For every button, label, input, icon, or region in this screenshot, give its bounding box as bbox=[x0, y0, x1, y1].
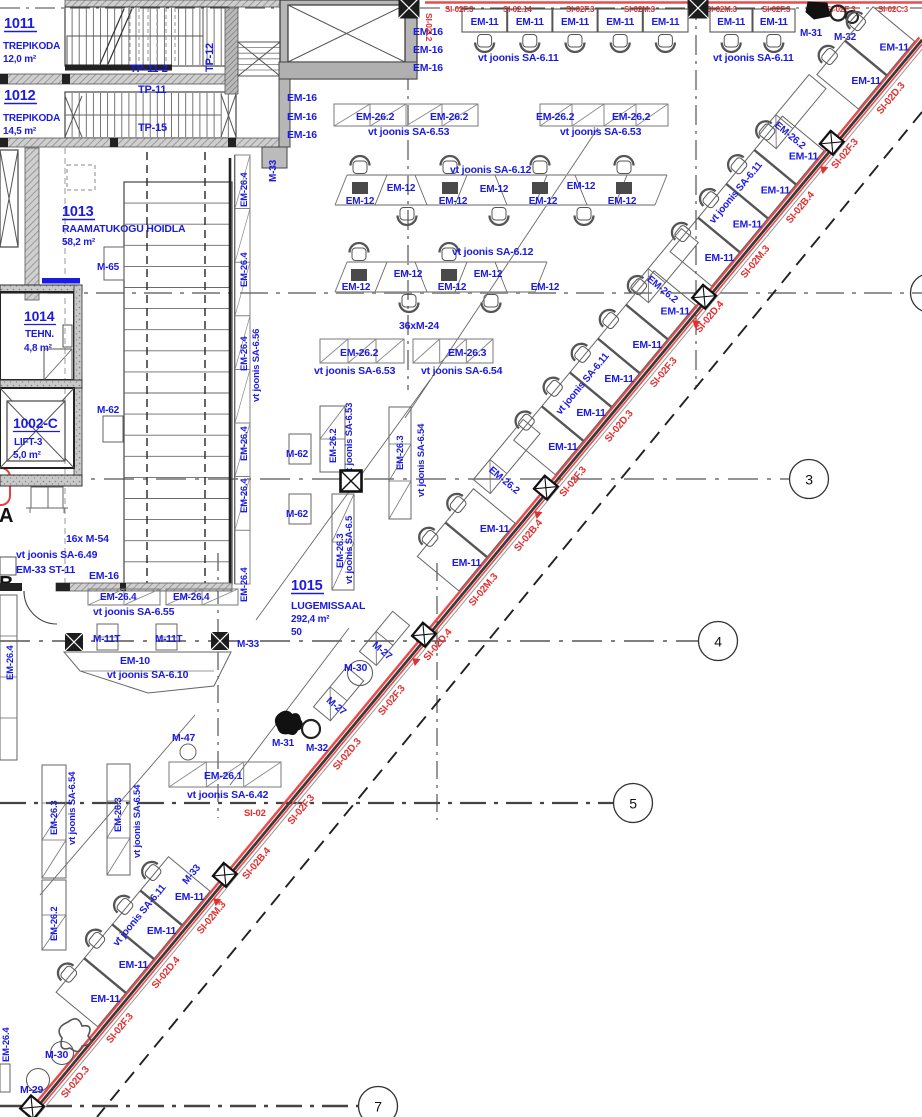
svg-text:EM-12: EM-12 bbox=[474, 269, 503, 280]
svg-text:EM-26.4: EM-26.4 bbox=[239, 172, 250, 207]
svg-text:1015: 1015 bbox=[291, 578, 323, 594]
svg-text:7: 7 bbox=[374, 1099, 382, 1115]
svg-text:M-32: M-32 bbox=[306, 743, 329, 754]
svg-text:vt joonis SA-6.54: vt joonis SA-6.54 bbox=[132, 784, 143, 858]
svg-text:TP-12: TP-12 bbox=[204, 43, 216, 72]
svg-text:EM-16: EM-16 bbox=[413, 44, 443, 56]
svg-text:vt joonis SA-6.55: vt joonis SA-6.55 bbox=[93, 606, 175, 618]
svg-text:vt joonis SA-6.53: vt joonis SA-6.53 bbox=[314, 365, 396, 377]
svg-text:EM-11: EM-11 bbox=[604, 373, 634, 385]
svg-text:vt joonis SA-6.54: vt joonis SA-6.54 bbox=[421, 365, 503, 377]
svg-text:EM-11: EM-11 bbox=[452, 557, 482, 569]
svg-text:EM-26.4: EM-26.4 bbox=[239, 252, 250, 287]
svg-text:vt joonis SA-6.5: vt joonis SA-6.5 bbox=[344, 515, 355, 584]
svg-text:vt joonis SA-6.54: vt joonis SA-6.54 bbox=[67, 771, 78, 845]
svg-text:vt joonis SA-6.10: vt joonis SA-6.10 bbox=[107, 669, 189, 681]
svg-text:EM-11: EM-11 bbox=[516, 17, 545, 28]
svg-text:1012: 1012 bbox=[4, 88, 36, 104]
svg-text:1011: 1011 bbox=[4, 16, 35, 32]
svg-text:EM-16: EM-16 bbox=[287, 111, 317, 123]
svg-text:1002-C: 1002-C bbox=[13, 415, 58, 431]
svg-text:EM-16: EM-16 bbox=[89, 570, 119, 582]
svg-text:EM-11: EM-11 bbox=[561, 17, 590, 28]
svg-text:M-47: M-47 bbox=[172, 732, 195, 744]
svg-text:M-33: M-33 bbox=[237, 639, 260, 650]
svg-text:vt joonis SA-6.12: vt joonis SA-6.12 bbox=[450, 164, 532, 176]
svg-text:SI-02I.2: SI-02I.2 bbox=[424, 13, 434, 42]
svg-text:vt joonis SA-6.12: vt joonis SA-6.12 bbox=[452, 246, 534, 258]
svg-text:vt joonis SA-6.53: vt joonis SA-6.53 bbox=[560, 126, 642, 138]
svg-text:5: 5 bbox=[629, 796, 637, 812]
svg-text:SI-02: SI-02 bbox=[244, 808, 266, 819]
svg-text:EM-11: EM-11 bbox=[480, 523, 510, 535]
svg-text:M-62: M-62 bbox=[286, 449, 309, 460]
svg-text:292,4 m²: 292,4 m² bbox=[291, 614, 330, 625]
svg-text:3: 3 bbox=[805, 472, 813, 488]
svg-text:EM-26.2: EM-26.2 bbox=[356, 111, 395, 123]
svg-text:EM-26.4: EM-26.4 bbox=[239, 478, 250, 513]
svg-text:36xM-24: 36xM-24 bbox=[399, 320, 439, 332]
svg-text:EM-12: EM-12 bbox=[608, 196, 637, 207]
svg-text:M-62: M-62 bbox=[97, 405, 120, 416]
svg-text:1013: 1013 bbox=[62, 204, 94, 220]
svg-text:EM-26.4: EM-26.4 bbox=[239, 426, 250, 461]
svg-text:EM-11: EM-11 bbox=[175, 891, 205, 903]
svg-text:EM-11: EM-11 bbox=[761, 185, 791, 197]
svg-text:EM-11: EM-11 bbox=[633, 339, 663, 351]
svg-text:M-29: M-29 bbox=[20, 1084, 43, 1096]
svg-text:50: 50 bbox=[291, 627, 302, 638]
svg-text:LIFT-3: LIFT-3 bbox=[14, 437, 43, 448]
svg-text:vt joonis SA-6.53: vt joonis SA-6.53 bbox=[368, 126, 450, 138]
svg-text:EM-12: EM-12 bbox=[567, 181, 596, 192]
svg-text:EM-11: EM-11 bbox=[880, 41, 910, 53]
svg-text:EM-12: EM-12 bbox=[439, 196, 468, 207]
svg-text:vt joonis SA-6.49: vt joonis SA-6.49 bbox=[16, 549, 98, 561]
svg-text:EM-26.2: EM-26.2 bbox=[536, 111, 575, 123]
svg-text:TREPIKODA: TREPIKODA bbox=[3, 41, 60, 52]
svg-text:EM-26.4: EM-26.4 bbox=[173, 592, 210, 603]
svg-text:5,0 m²: 5,0 m² bbox=[13, 450, 42, 461]
svg-text:EM-26.3: EM-26.3 bbox=[395, 435, 406, 470]
svg-text:EM-11: EM-11 bbox=[705, 252, 735, 264]
svg-text:EM-11: EM-11 bbox=[606, 17, 635, 28]
svg-text:EM-11: EM-11 bbox=[548, 441, 578, 453]
svg-text:M-30: M-30 bbox=[344, 662, 367, 674]
svg-text:TP-15: TP-15 bbox=[138, 122, 167, 134]
svg-text:LUGEMISSAAL: LUGEMISSAAL bbox=[291, 600, 366, 612]
svg-text:EM-26.2: EM-26.2 bbox=[328, 428, 339, 463]
svg-text:M-65: M-65 bbox=[97, 262, 120, 273]
svg-text:EM-26.2: EM-26.2 bbox=[430, 111, 469, 123]
svg-text:EM-11: EM-11 bbox=[576, 407, 606, 419]
svg-text:EM-12: EM-12 bbox=[394, 269, 423, 280]
svg-text:EM-11: EM-11 bbox=[789, 151, 819, 163]
svg-text:vt joonis SA-6.42: vt joonis SA-6.42 bbox=[187, 789, 269, 801]
svg-text:EM-11: EM-11 bbox=[147, 925, 177, 937]
svg-text:EM-12: EM-12 bbox=[387, 183, 416, 194]
svg-text:EM-11: EM-11 bbox=[661, 305, 691, 317]
svg-text:EM-16: EM-16 bbox=[413, 62, 443, 74]
svg-text:M-11T: M-11T bbox=[155, 634, 182, 645]
svg-text:EM-11: EM-11 bbox=[471, 17, 500, 28]
svg-text:14,5 m²: 14,5 m² bbox=[3, 126, 37, 137]
svg-text:EM-11: EM-11 bbox=[651, 17, 680, 28]
svg-text:M-33: M-33 bbox=[268, 159, 279, 182]
svg-text:1014: 1014 bbox=[24, 308, 55, 324]
svg-text:EM-12: EM-12 bbox=[438, 282, 467, 293]
svg-text:EM-12: EM-12 bbox=[531, 282, 560, 293]
svg-text:vt joonis SA-6.56: vt joonis SA-6.56 bbox=[251, 329, 262, 402]
svg-text:EM-26.3: EM-26.3 bbox=[113, 797, 124, 832]
svg-text:A: A bbox=[0, 505, 13, 527]
svg-text:EM-11: EM-11 bbox=[119, 959, 149, 971]
svg-text:EM-26.2: EM-26.2 bbox=[49, 906, 60, 941]
svg-text:EM-11: EM-11 bbox=[91, 993, 121, 1005]
svg-text:vt joonis SA-6.54: vt joonis SA-6.54 bbox=[416, 423, 427, 497]
svg-text:EM-26.2: EM-26.2 bbox=[612, 111, 651, 123]
svg-text:TP-11-2: TP-11-2 bbox=[130, 63, 168, 75]
svg-text:EM-26.4: EM-26.4 bbox=[5, 645, 16, 680]
svg-text:vt joonis SA-6.11: vt joonis SA-6.11 bbox=[478, 52, 559, 64]
svg-text:EM-16: EM-16 bbox=[287, 129, 317, 141]
svg-text:58,2 m²: 58,2 m² bbox=[62, 237, 96, 248]
svg-text:M-62: M-62 bbox=[286, 509, 309, 520]
svg-text:EM-12: EM-12 bbox=[342, 282, 371, 293]
svg-text:EM-26.3: EM-26.3 bbox=[49, 800, 60, 835]
svg-text:12,0 m²: 12,0 m² bbox=[3, 54, 37, 65]
svg-text:EM-33 ST-11: EM-33 ST-11 bbox=[16, 564, 75, 576]
svg-text:EM-12: EM-12 bbox=[529, 196, 558, 207]
svg-text:EM-26.4: EM-26.4 bbox=[239, 336, 250, 371]
svg-text:TREPIKODA: TREPIKODA bbox=[3, 113, 60, 124]
svg-text:M-11T: M-11T bbox=[93, 634, 120, 645]
svg-text:EM-16: EM-16 bbox=[287, 92, 317, 104]
svg-text:EM-11: EM-11 bbox=[760, 17, 789, 28]
svg-text:4: 4 bbox=[714, 634, 722, 650]
svg-text:EM-26.4: EM-26.4 bbox=[1, 1027, 12, 1062]
svg-text:EM-26.2: EM-26.2 bbox=[340, 347, 379, 359]
svg-text:vt joonis SA-6.53: vt joonis SA-6.53 bbox=[344, 403, 355, 476]
svg-text:M-31: M-31 bbox=[800, 28, 823, 39]
svg-text:EM-10: EM-10 bbox=[120, 655, 150, 667]
svg-text:M-31: M-31 bbox=[272, 738, 295, 749]
svg-text:EM-11: EM-11 bbox=[851, 75, 881, 87]
svg-text:EM-26.4: EM-26.4 bbox=[239, 567, 250, 602]
svg-text:SI-02C.3: SI-02C.3 bbox=[878, 5, 909, 14]
svg-text:EM-11: EM-11 bbox=[733, 218, 763, 230]
svg-text:M-30: M-30 bbox=[45, 1049, 68, 1061]
svg-text:EM-26.3: EM-26.3 bbox=[448, 347, 487, 359]
svg-text:vt joonis SA-6.11: vt joonis SA-6.11 bbox=[713, 52, 794, 64]
svg-text:EM-12: EM-12 bbox=[346, 196, 375, 207]
svg-text:EM-12: EM-12 bbox=[480, 184, 509, 195]
svg-text:EM-11: EM-11 bbox=[717, 17, 746, 28]
svg-text:TP-11: TP-11 bbox=[138, 84, 166, 96]
svg-text:EM-26.1: EM-26.1 bbox=[204, 770, 243, 782]
svg-text:EM-26.4: EM-26.4 bbox=[100, 592, 137, 603]
svg-text:TEHN.: TEHN. bbox=[25, 329, 54, 340]
svg-text:16x M-54: 16x M-54 bbox=[66, 533, 109, 545]
